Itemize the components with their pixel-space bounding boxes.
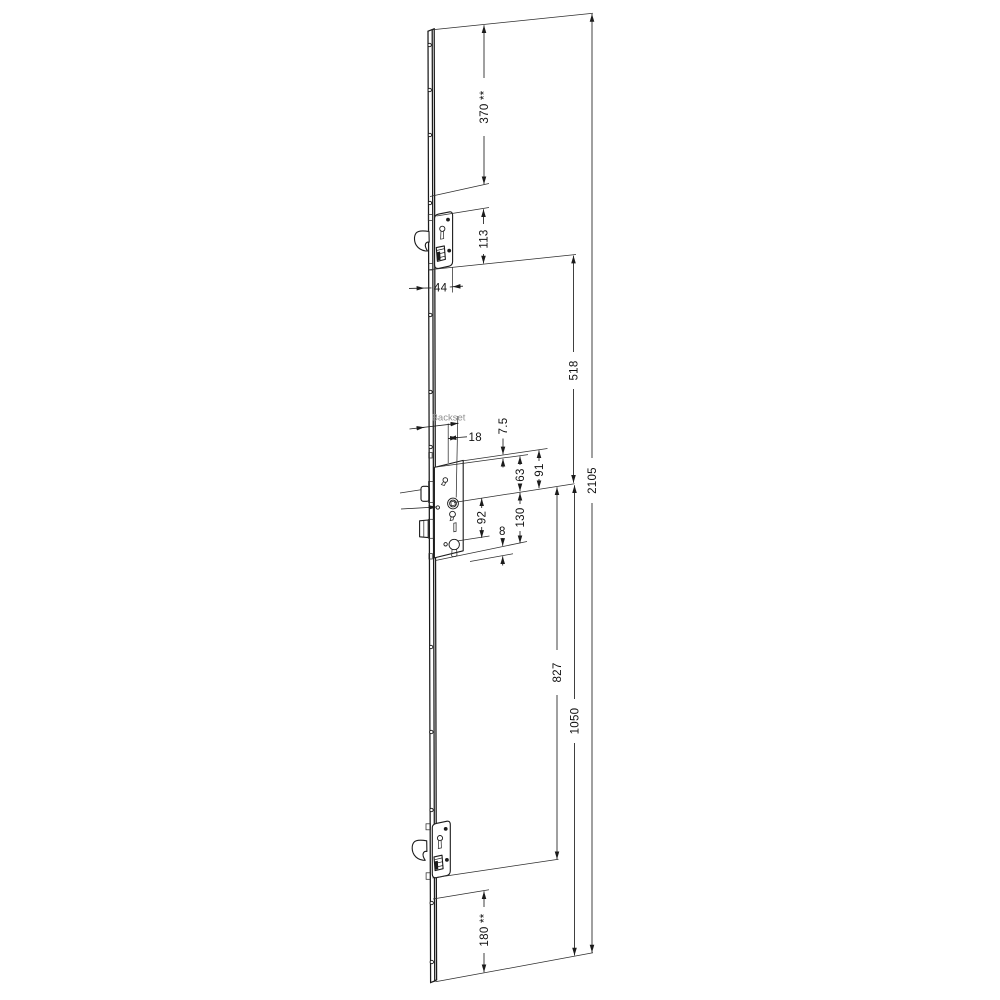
dimension-180: 180 **: [479, 891, 491, 972]
dimension-113: 113: [479, 209, 491, 263]
dimension-8: 8: [499, 526, 506, 566]
dim-label-91: 91: [534, 463, 546, 476]
dim-label-63: 63: [515, 468, 527, 481]
dimension-18: 18: [448, 432, 482, 444]
latch-bolt: [421, 486, 429, 501]
dim-label-370: 370 **: [479, 90, 491, 123]
dim-label-180: 180 **: [479, 913, 491, 946]
dimension-130: 130: [515, 493, 527, 543]
dim-label-backset: Backset: [432, 413, 466, 424]
dimension-92: 92: [477, 498, 489, 538]
dimension-44: 44: [409, 283, 463, 295]
dim-label-827: 827: [552, 662, 564, 682]
lock-dimension-drawing-page: { "drawing": { "labels": { "backset": "B…: [0, 0, 1000, 1000]
dim-label-1050: 1050: [570, 708, 582, 735]
handle-follower-hub: [448, 498, 459, 509]
dim-label-130: 130: [515, 507, 527, 527]
dimension-827: 827: [552, 487, 564, 859]
dim-label-8: 8: [499, 526, 506, 538]
dimension-1050: 1050: [570, 485, 582, 955]
dim-label-7-5: 7.5: [498, 418, 510, 435]
dim-label-92: 92: [477, 511, 489, 524]
dimension-91: 91: [534, 450, 546, 488]
dimension-7-5: 7.5: [498, 418, 510, 468]
upper-hook-lock-case: [414, 212, 452, 270]
dimension-2105: 2105: [587, 14, 599, 953]
multipoint-lock-technical-drawing: 370 ** 113 44 518 2105 1050 827 91: [0, 0, 1000, 1000]
dimension-370: 370 **: [479, 25, 491, 184]
dimension-518: 518: [569, 256, 581, 483]
lower-hook-lock-case: [412, 821, 450, 879]
dimension-63: 63: [515, 456, 527, 491]
dim-label-2105: 2105: [587, 467, 599, 494]
dim-label-113: 113: [479, 229, 491, 248]
dim-label-518: 518: [569, 360, 581, 380]
dim-label-18: 18: [469, 432, 482, 444]
hook-bolt: [414, 231, 429, 251]
dim-label-44: 44: [434, 283, 448, 295]
